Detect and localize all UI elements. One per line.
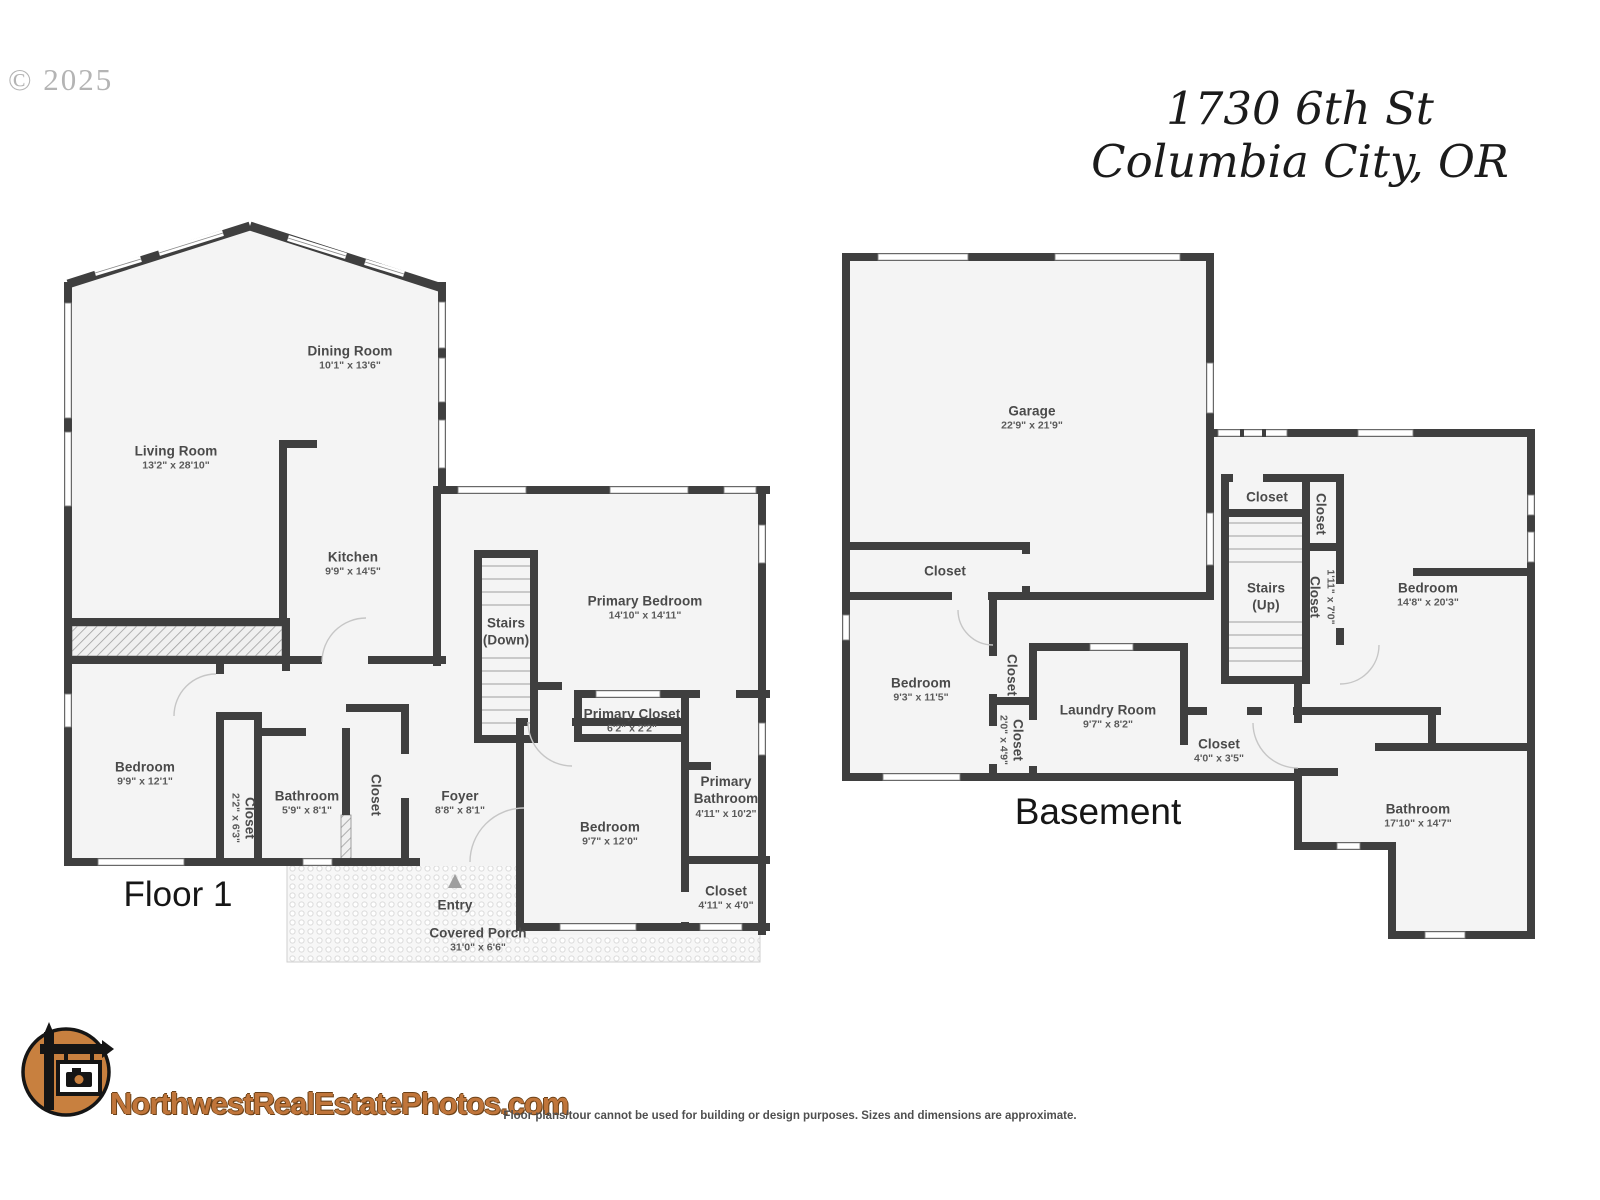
room-label-basement-bathroom: Bathroom17'10" x 14'7" [1384, 801, 1452, 832]
room-label-basement-bedroom-left: Bedroom9'3" x 11'5" [891, 675, 951, 706]
door-hatch [341, 815, 351, 862]
room-label-foyer: Foyer8'8" x 8'1" [435, 788, 485, 819]
room-label-kitchen: Kitchen9'9" x 14'5" [325, 549, 381, 580]
room-label-basement-bedroom-right: Bedroom14'8" x 20'3" [1397, 580, 1459, 611]
logo-icon [14, 1016, 124, 1136]
floor1-title: Floor 1 [124, 875, 233, 915]
room-label-stairs-up: Stairs(Up) [1247, 580, 1285, 615]
copyright-watermark: © 2025 [8, 62, 113, 98]
room-label-laundry: Laundry Room9'7" x 8'2" [1060, 702, 1156, 733]
basement-title: Basement [1015, 791, 1182, 833]
disclaimer-text: Floor plans/tour cannot be used for buil… [503, 1110, 1076, 1122]
room-label-closet-foyer: Closet [367, 774, 384, 816]
room-label-closet-hall: Closet2'2" x 6'3" [228, 793, 259, 843]
logo-site-text: NorthwestRealEstatePhotos.com [110, 1086, 569, 1122]
address-line2: Columbia City, OR [1015, 134, 1585, 190]
room-label-primary-closet: Primary Closet6'2" x 2'2" [584, 706, 681, 737]
room-label-closet-tall: 1'11" x 7'0"Closet [1306, 569, 1337, 624]
room-label-bedroom-right: Bedroom9'7" x 12'0" [580, 819, 640, 850]
room-label-bedroom-left: Bedroom9'9" x 12'1" [115, 759, 175, 790]
address-line1: 1730 6th St [1015, 84, 1585, 134]
room-label-dining: Dining Room10'1" x 13'6" [307, 343, 392, 374]
room-label-stairs-down: Stairs(Down) [483, 615, 529, 650]
fireplace-hatch [72, 626, 282, 656]
room-label-closet-hall-basement: Closet4'0" x 3'5" [1194, 736, 1244, 767]
room-label-garage: Garage22'9" x 21'9" [1001, 403, 1063, 434]
room-label-closet-side: Closet [1312, 493, 1329, 535]
room-label-covered-porch: Covered Porch31'0" x 6'6" [429, 925, 526, 956]
room-label-closet-upper: Closet [1003, 654, 1020, 696]
floor1-footprint [68, 226, 766, 935]
room-label-stairs-closet: Closet [1246, 488, 1288, 505]
room-label-closet-right: Closet4'11" x 4'0" [698, 883, 753, 914]
property-address: 1730 6th St Columbia City, OR [1015, 84, 1585, 190]
room-label-living: Living Room13'2" x 28'10" [135, 443, 218, 474]
room-label-primary-bathroom: Primary Bathroom4'11" x 10'2" [680, 773, 772, 821]
photographer-logo: NorthwestRealEstatePhotos.com [14, 1016, 574, 1136]
room-label-primary-bedroom: Primary Bedroom14'10" x 14'11" [588, 593, 703, 624]
room-label-closet-lower: Closet2'0" x 4'9" [996, 715, 1027, 765]
entry-label: Entry [437, 896, 472, 913]
room-label-bathroom1: Bathroom5'9" x 8'1" [275, 788, 340, 819]
room-label-garage-closet: Closet [924, 562, 966, 579]
